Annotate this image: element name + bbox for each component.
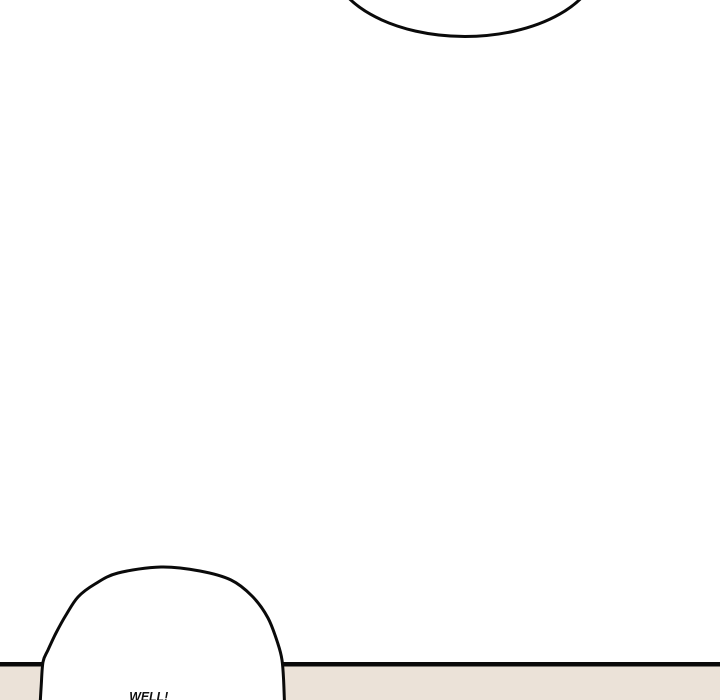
svg-text:WELL!: WELL!: [129, 689, 169, 700]
